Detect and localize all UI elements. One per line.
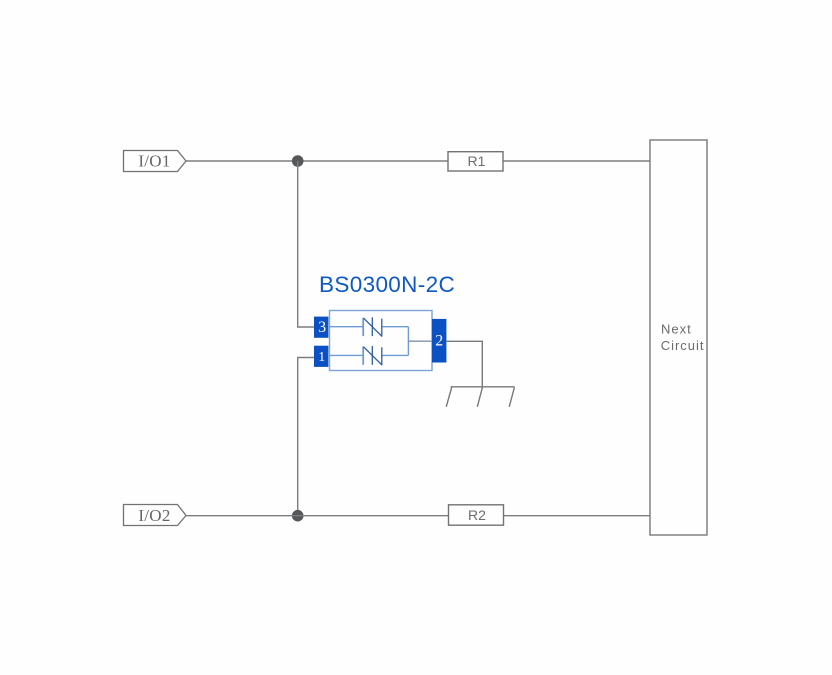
svg-text:R1: R1 bbox=[468, 153, 486, 169]
svg-text:R2: R2 bbox=[468, 507, 486, 523]
svg-text:Next: Next bbox=[661, 322, 692, 337]
svg-text:2: 2 bbox=[435, 332, 443, 349]
svg-text:Circuit: Circuit bbox=[661, 338, 705, 353]
svg-text:I/O1: I/O1 bbox=[138, 152, 170, 171]
svg-text:1: 1 bbox=[318, 350, 325, 365]
svg-text:BS0300N-2C: BS0300N-2C bbox=[319, 272, 455, 297]
svg-text:I/O2: I/O2 bbox=[138, 506, 170, 525]
svg-text:3: 3 bbox=[318, 319, 326, 336]
